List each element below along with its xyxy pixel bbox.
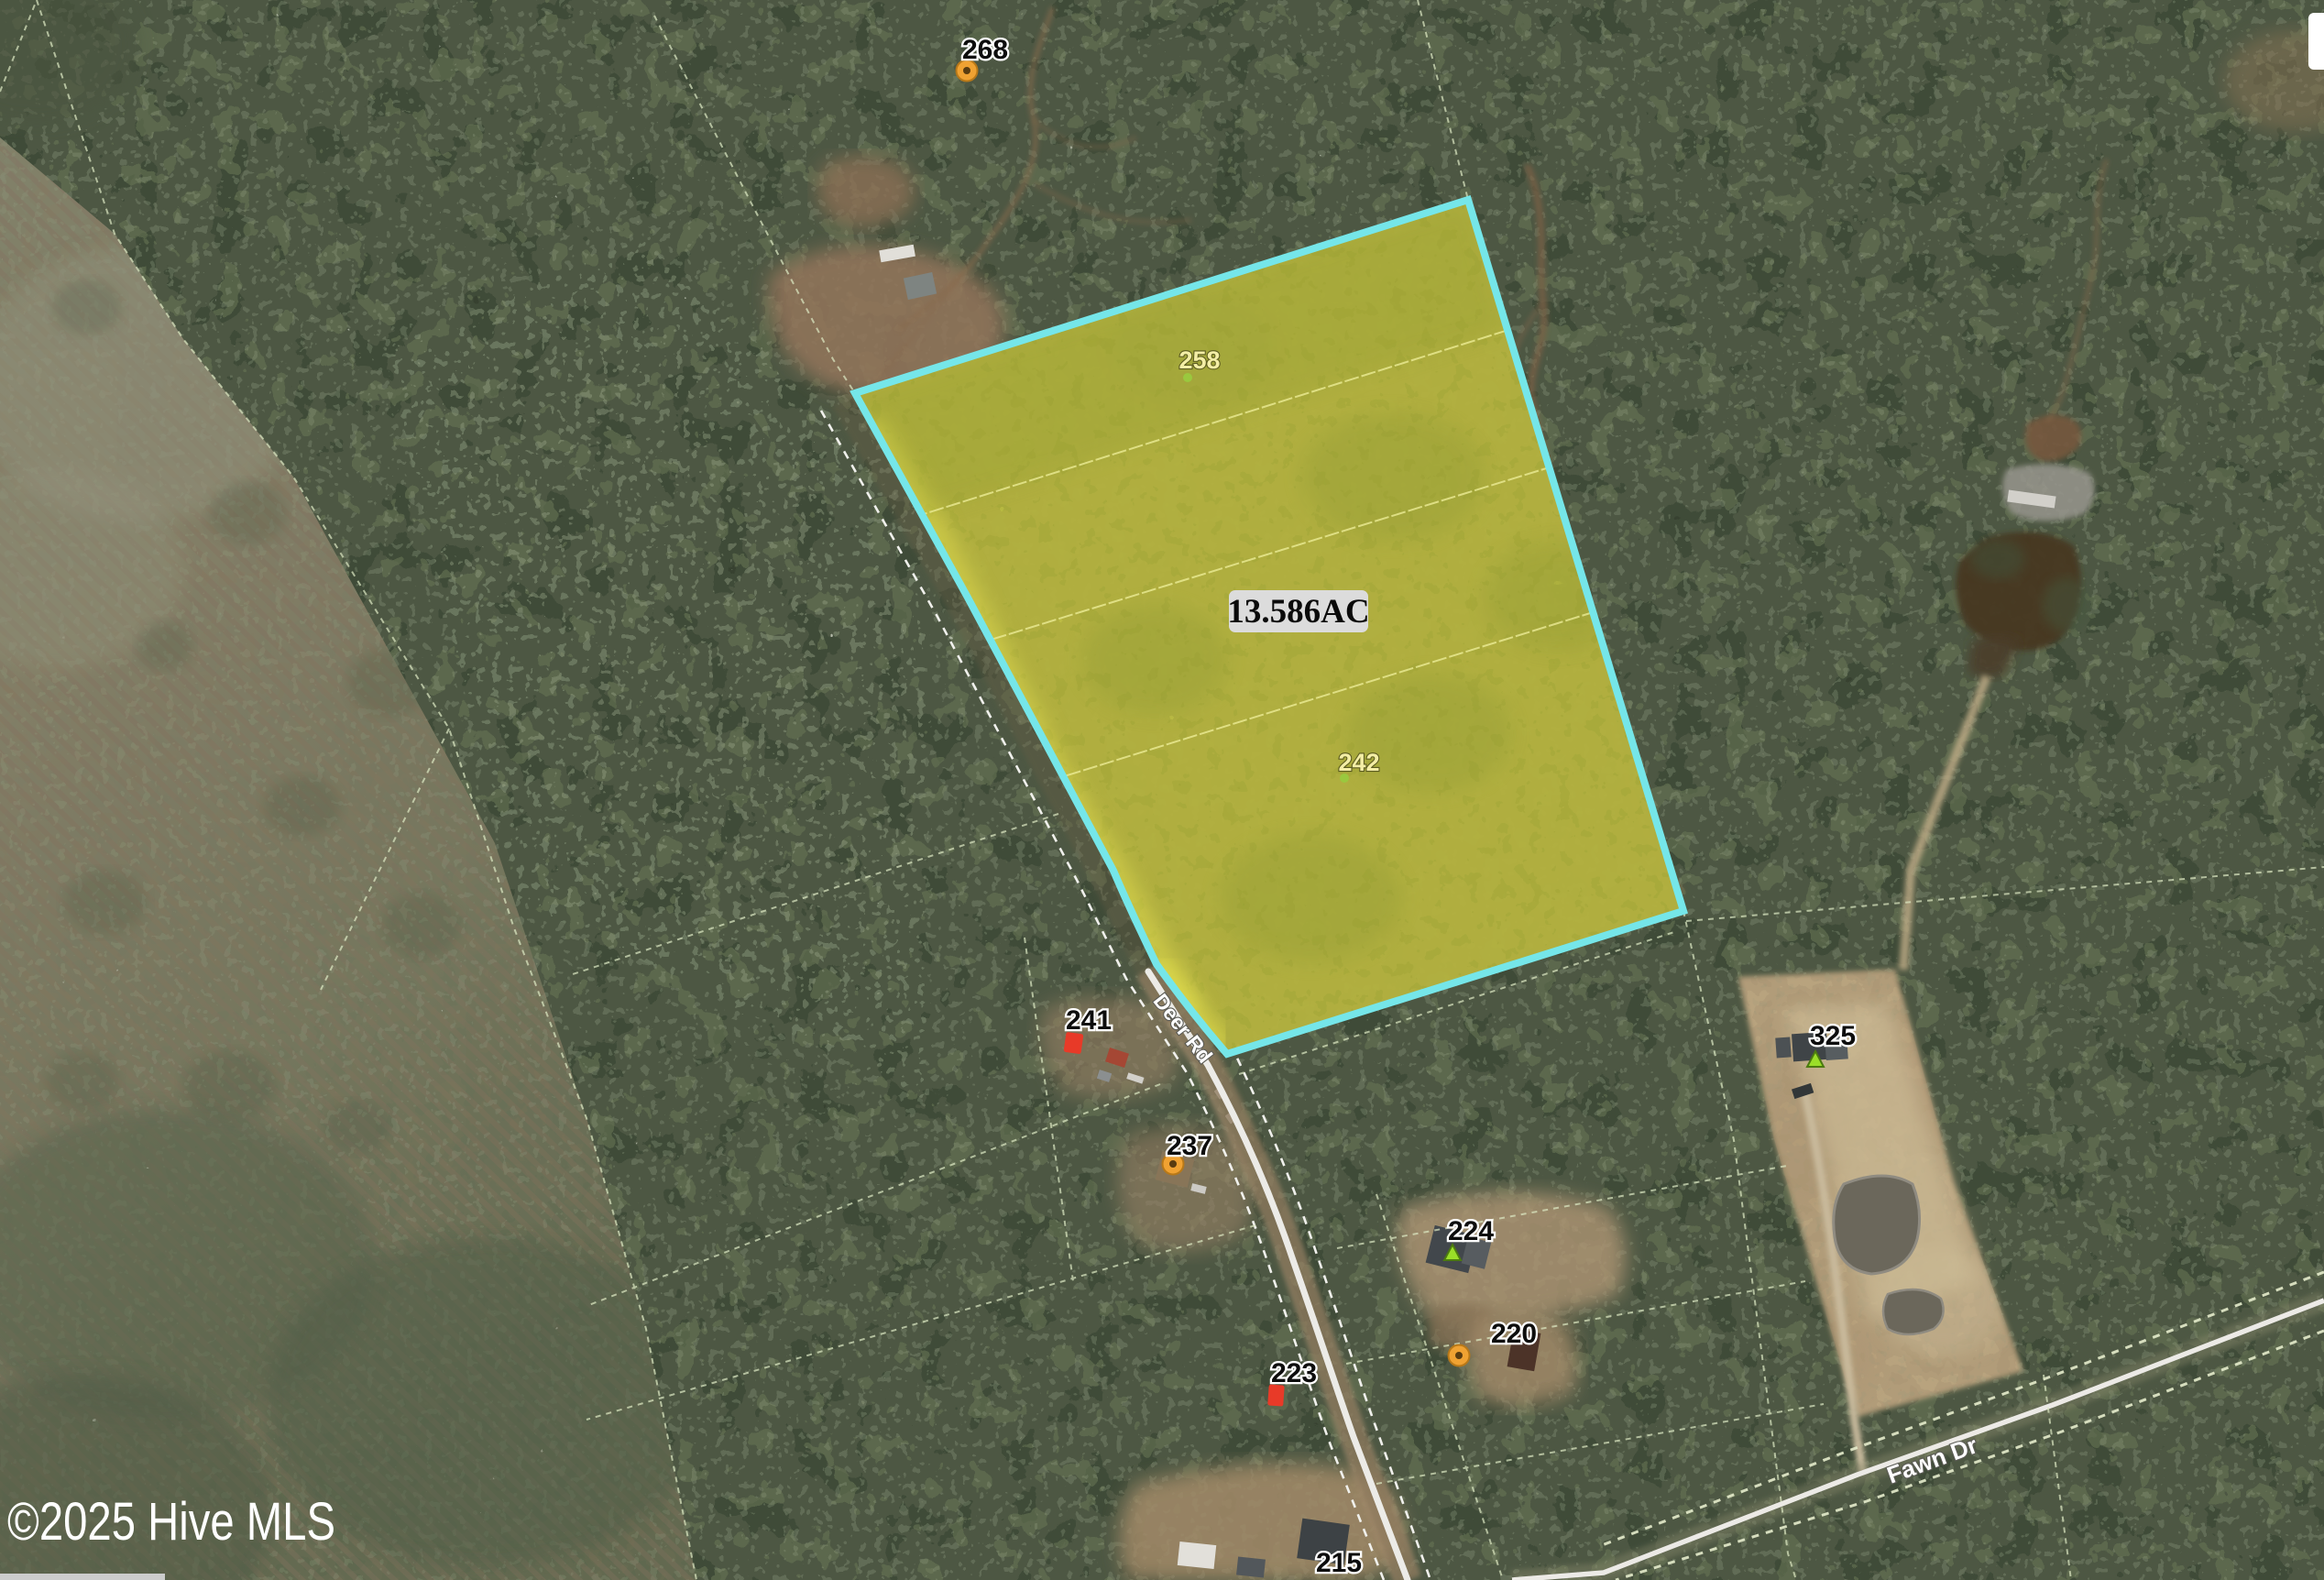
svg-text:220: 220 bbox=[1491, 1319, 1537, 1349]
svg-text:242: 242 bbox=[1338, 749, 1379, 776]
svg-text:224: 224 bbox=[1448, 1216, 1494, 1246]
svg-text:13.586AC: 13.586AC bbox=[1227, 593, 1369, 631]
svg-text:258: 258 bbox=[1178, 346, 1220, 374]
svg-text:268: 268 bbox=[962, 35, 1008, 65]
svg-text:©2025 Hive MLS: ©2025 Hive MLS bbox=[7, 1492, 335, 1552]
svg-text:215: 215 bbox=[1316, 1548, 1362, 1578]
svg-text:223: 223 bbox=[1271, 1358, 1317, 1388]
svg-text:325: 325 bbox=[1810, 1021, 1856, 1051]
svg-text:237: 237 bbox=[1167, 1131, 1212, 1161]
svg-text:241: 241 bbox=[1066, 1005, 1112, 1036]
